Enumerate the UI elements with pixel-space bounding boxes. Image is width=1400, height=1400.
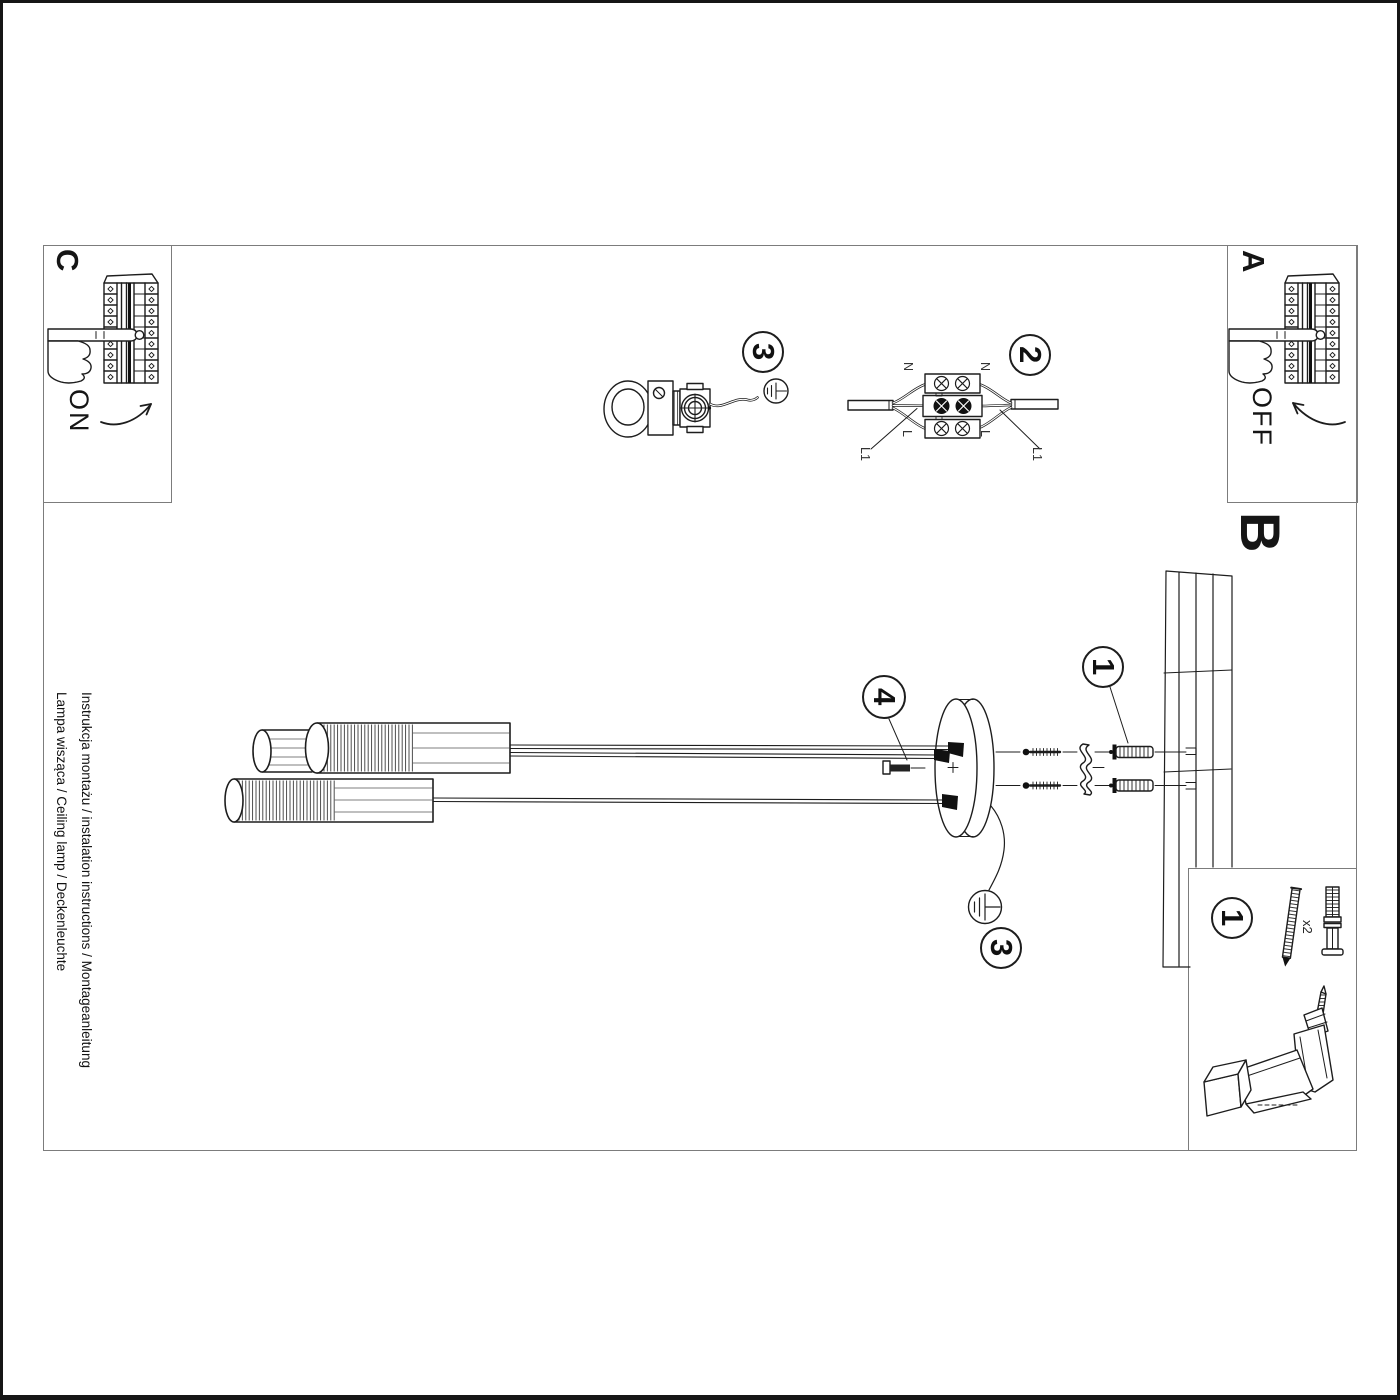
- ground-symbol-canopy-icon: [969, 891, 1002, 924]
- wall-plug-icon: [1109, 745, 1153, 760]
- terminal-block-icon: [848, 374, 1058, 449]
- included-screw-icon: [1280, 888, 1301, 968]
- canopy-ground-wire: [989, 806, 1004, 890]
- included-wall-plug-icon: [1322, 887, 1343, 955]
- terminal-n-right-label: N: [978, 362, 992, 371]
- step-2-badge-wiring: 2: [1009, 334, 1051, 376]
- section-c-label: C: [49, 249, 85, 272]
- section-b-label: B: [1228, 512, 1293, 552]
- mounting-bolt-icon: [883, 719, 925, 774]
- parts-1-badge: 1: [1211, 897, 1253, 939]
- switch-off-label: OFF: [1246, 387, 1277, 447]
- canopy: [935, 699, 994, 837]
- terminal-l-left-label: L: [900, 430, 914, 437]
- lamp-shade-back: [253, 730, 312, 772]
- title-line-product: Lampa wisząca / Ceiling lamp / Deckenleu…: [49, 692, 74, 1068]
- wall-plug-icon: [1109, 778, 1153, 793]
- switch-on-label: ON: [63, 389, 94, 434]
- screw-icon: [1023, 749, 1060, 756]
- curved-arrow-on-icon: [101, 404, 151, 424]
- terminal-l1-right-label: L1: [1030, 447, 1044, 461]
- instruction-sheet: C ON A OFF B N N L L L1 L1 x2 3 2 1 4 3 …: [0, 0, 1400, 1400]
- lamp-shade-top: [306, 723, 511, 773]
- step-3-badge-ground: 3: [980, 927, 1022, 969]
- section-a-label: A: [1235, 250, 1271, 273]
- step-1-badge-mount: 1: [1082, 646, 1124, 688]
- hook-wire: [710, 398, 758, 406]
- wall-fixing-hardware: [996, 687, 1186, 795]
- step-3-badge-hook: 3: [742, 331, 784, 373]
- screw-icon: [1023, 782, 1060, 789]
- terminal-l-right-label: L: [978, 430, 992, 437]
- terminal-l1-left-label: L1: [858, 447, 872, 461]
- screws-quantity-label: x2: [1300, 920, 1315, 934]
- lamp-shade-bottom: [225, 779, 433, 822]
- curved-arrow-off-icon: [1293, 403, 1345, 424]
- title-line-instructions: Instrukcja montażu / instalation instruc…: [74, 692, 99, 1068]
- mounting-bracket-icon: [1080, 744, 1092, 795]
- ground-symbol-hook-icon: [764, 379, 788, 403]
- terminal-n-left-label: N: [901, 362, 915, 371]
- drill-icon: [1204, 986, 1333, 1116]
- title-block: Instrukcja montażu / instalation instruc…: [49, 692, 99, 1068]
- line-art: [0, 0, 1400, 1400]
- ceiling-hook-icon: [604, 381, 758, 437]
- step-4-badge-bolt: 4: [862, 675, 906, 719]
